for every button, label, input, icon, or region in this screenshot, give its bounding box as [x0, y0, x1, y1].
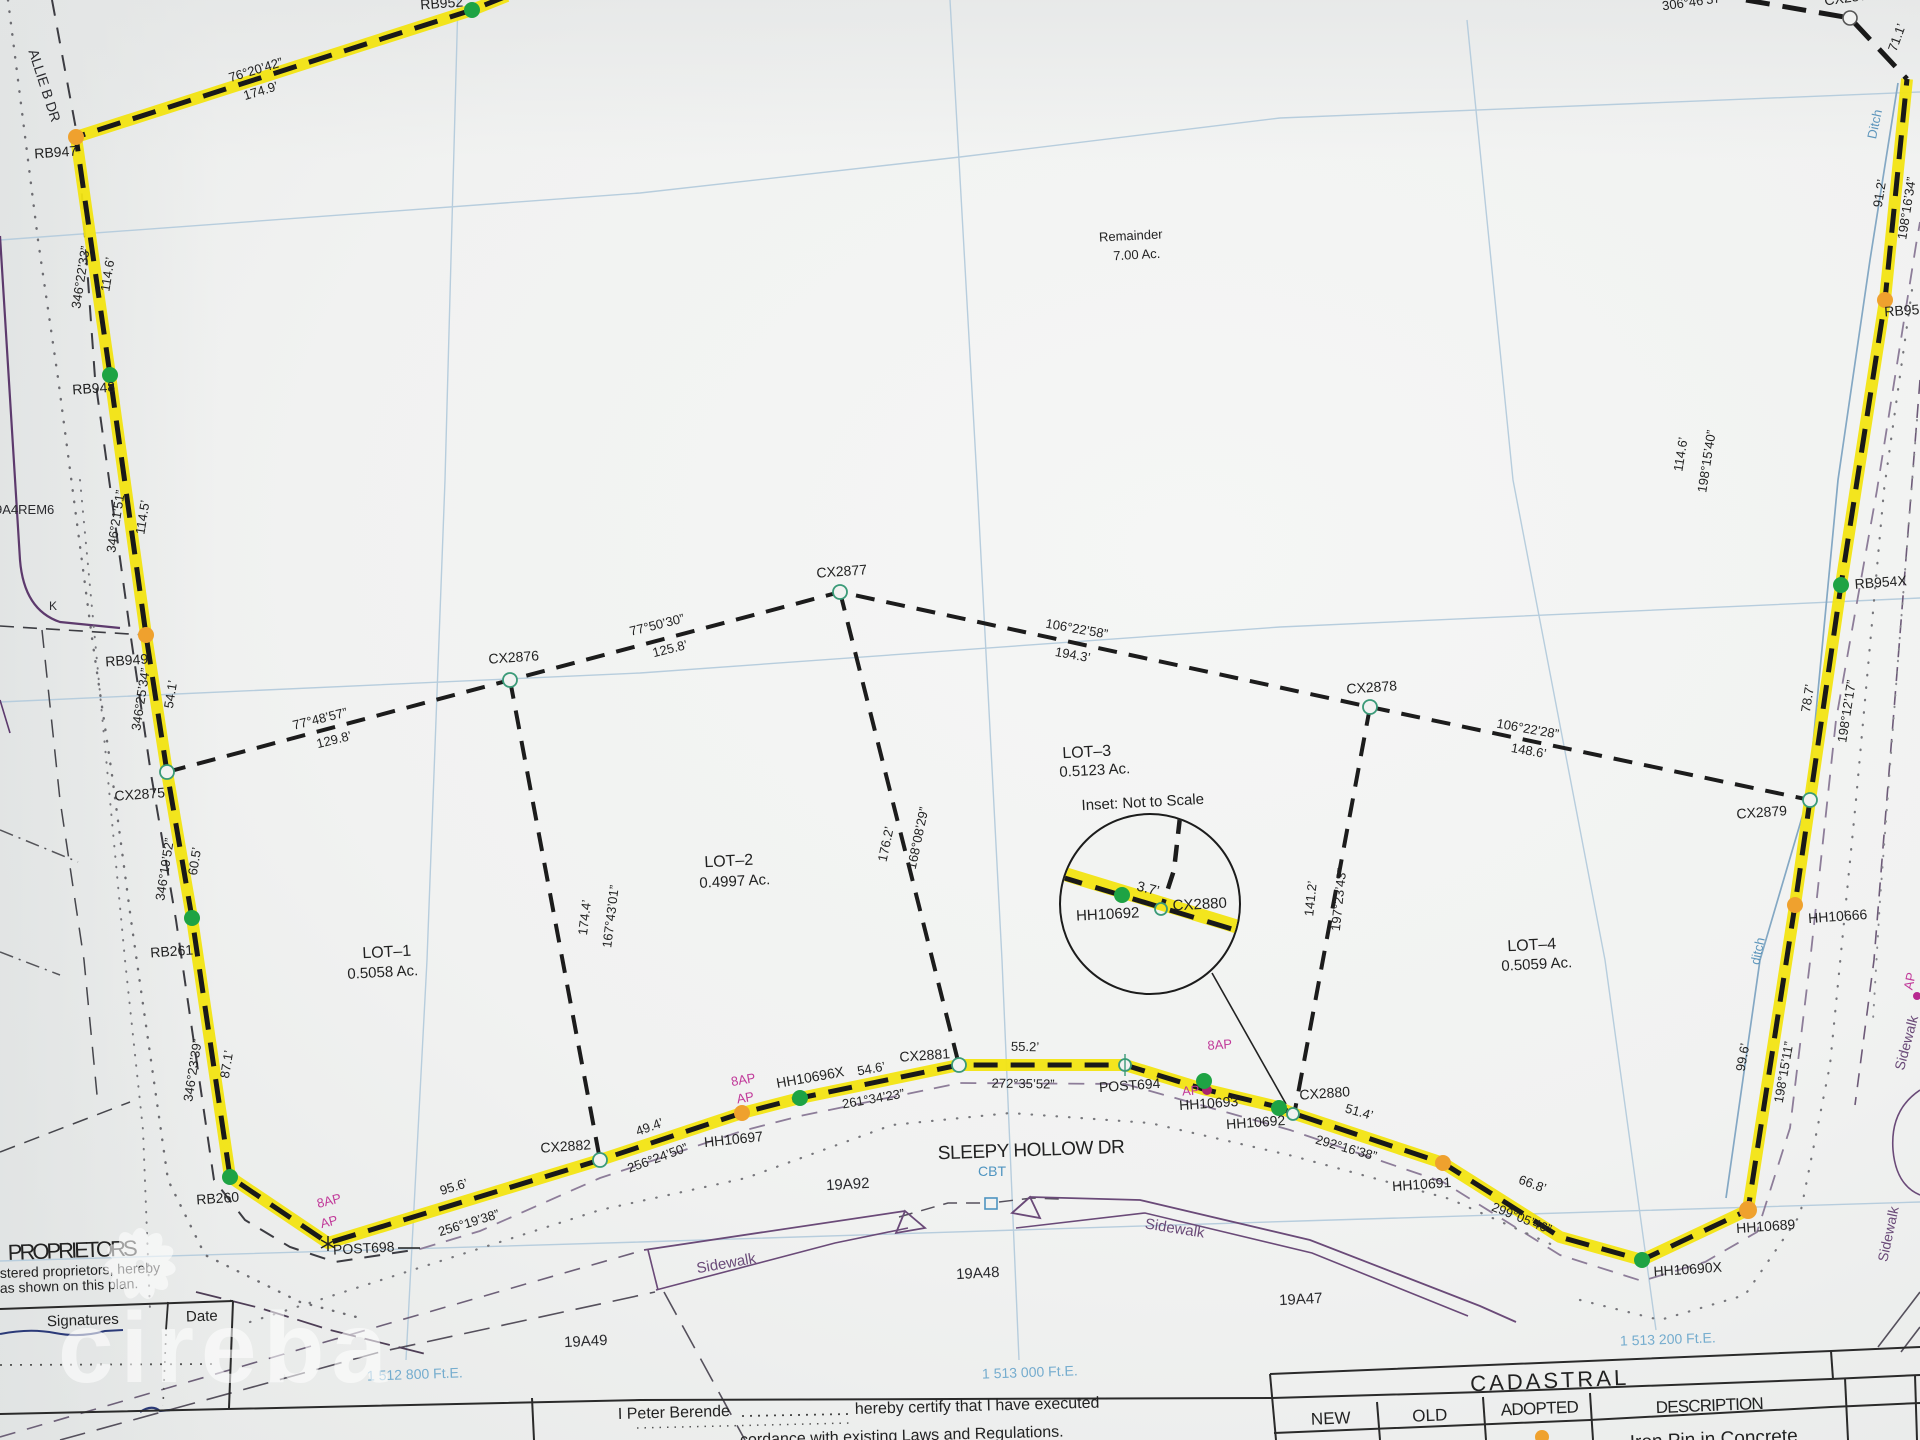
svg-text:9A4REM6: 9A4REM6	[0, 502, 54, 517]
svg-text:RB948: RB948	[72, 379, 116, 398]
svg-text:19A49: 19A49	[564, 1332, 608, 1351]
svg-text:HH10692: HH10692	[1076, 904, 1140, 924]
svg-text:cireba: cireba	[58, 1292, 393, 1404]
svg-text:NEW: NEW	[1311, 1408, 1351, 1429]
svg-text:55.2’: 55.2’	[1011, 1039, 1040, 1054]
svg-text:19A48: 19A48	[956, 1264, 1000, 1283]
svg-text:272°35’52”: 272°35’52”	[991, 1075, 1054, 1091]
svg-text:OLD: OLD	[1412, 1405, 1448, 1425]
svg-text:K: K	[49, 599, 57, 613]
svg-text:RB949: RB949	[105, 651, 149, 670]
svg-text:1 513 000 Ft.E.: 1 513 000 Ft.E.	[982, 1362, 1078, 1381]
svg-text:LOT–4: LOT–4	[1507, 936, 1557, 956]
svg-text:I Peter Berende: I Peter Berende	[618, 1403, 731, 1423]
svg-text:19A47: 19A47	[1279, 1290, 1323, 1309]
svg-text:LOT–3: LOT–3	[1062, 743, 1112, 763]
svg-text:19A92: 19A92	[826, 1175, 870, 1194]
svg-text:RB955: RB955	[1884, 301, 1920, 320]
svg-text:AP: AP	[735, 1089, 755, 1107]
svg-text:RB260: RB260	[196, 1189, 240, 1208]
svg-text:7.00 Ac.: 7.00 Ac.	[1113, 246, 1161, 263]
svg-text:LOT–2: LOT–2	[704, 852, 754, 872]
svg-text:8AP: 8AP	[1207, 1036, 1233, 1053]
svg-text:ADOPTED: ADOPTED	[1500, 1397, 1579, 1419]
svg-text:LOT–1: LOT–1	[362, 943, 412, 963]
svg-text:CX2880: CX2880	[1172, 895, 1227, 915]
svg-text:CBT: CBT	[978, 1163, 1006, 1179]
svg-text:RB261: RB261	[150, 942, 194, 961]
svg-text:RB947: RB947	[34, 143, 78, 162]
svg-text:1 513 200 Ft.E.: 1 513 200 Ft.E.	[1620, 1329, 1716, 1348]
svg-text:POST698: POST698	[333, 1238, 395, 1257]
